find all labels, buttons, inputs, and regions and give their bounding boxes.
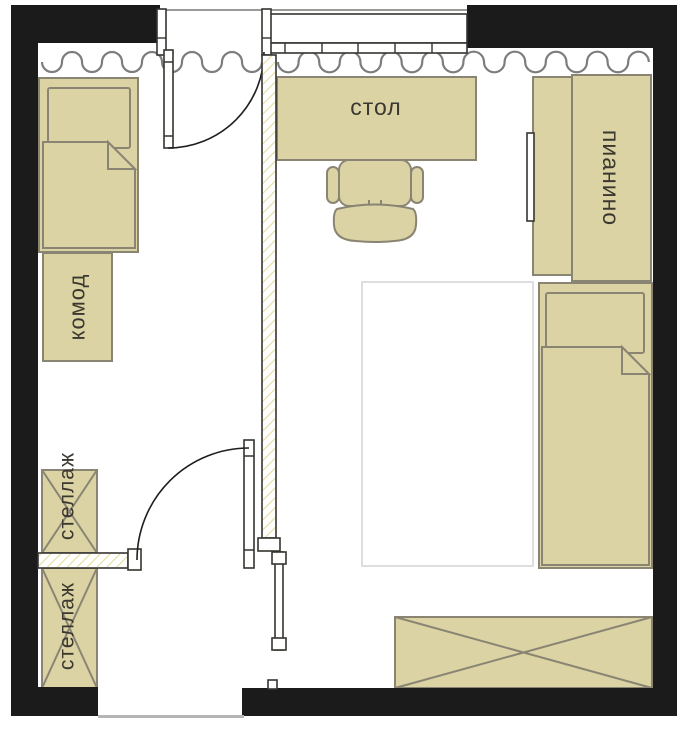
bed-right — [539, 283, 652, 568]
office-chair — [327, 160, 423, 242]
dresser-label: комод — [65, 274, 90, 341]
wall-bottom — [242, 688, 662, 716]
bed-left — [39, 78, 138, 252]
interior-door-leaf — [275, 552, 283, 650]
desk-label: стол — [350, 94, 401, 120]
interior-wall-end-jamb — [258, 538, 280, 551]
entry-door-leaf — [244, 440, 254, 568]
interior-door-cap-bottom — [272, 638, 286, 650]
curtain-right — [278, 52, 649, 73]
wall-right — [653, 5, 677, 716]
floor-plan-canvas: комод стеллаж стеллаж стол пианино — [0, 0, 688, 745]
rug — [362, 282, 533, 566]
window — [268, 14, 467, 53]
piano-bench — [527, 133, 534, 221]
door-strike-jamb — [268, 680, 277, 689]
wall-top-right — [467, 5, 677, 48]
dresser: комод — [43, 253, 112, 361]
balcony-door — [157, 9, 271, 148]
curtain-left — [42, 52, 262, 72]
wall-left — [11, 5, 38, 716]
floor-plan: комод стеллаж стеллаж стол пианино — [0, 0, 688, 745]
piano: пианино — [527, 75, 651, 281]
shelf-unit-lower: стеллаж — [42, 568, 97, 688]
entry-door-swing-arc — [137, 448, 249, 560]
balcony-door-leaf — [164, 50, 173, 148]
wall-top-left — [11, 5, 160, 43]
balcony-door-swing-arc — [168, 52, 264, 148]
balcony-door-jamb-left — [157, 9, 166, 55]
shelf-unit-upper: стеллаж — [42, 452, 97, 553]
interior-door-cap-top — [272, 552, 286, 564]
storage-unit-bottom — [395, 617, 652, 688]
wall-bottom-left — [11, 687, 98, 716]
balcony-door-jamb-right — [262, 9, 271, 55]
piano-label: пианино — [598, 130, 624, 226]
entry-door-jamb — [128, 549, 141, 570]
shelf-lower-label: стеллаж — [56, 582, 79, 670]
desk: стол — [277, 77, 476, 160]
shelf-upper-label: стеллаж — [56, 452, 79, 540]
